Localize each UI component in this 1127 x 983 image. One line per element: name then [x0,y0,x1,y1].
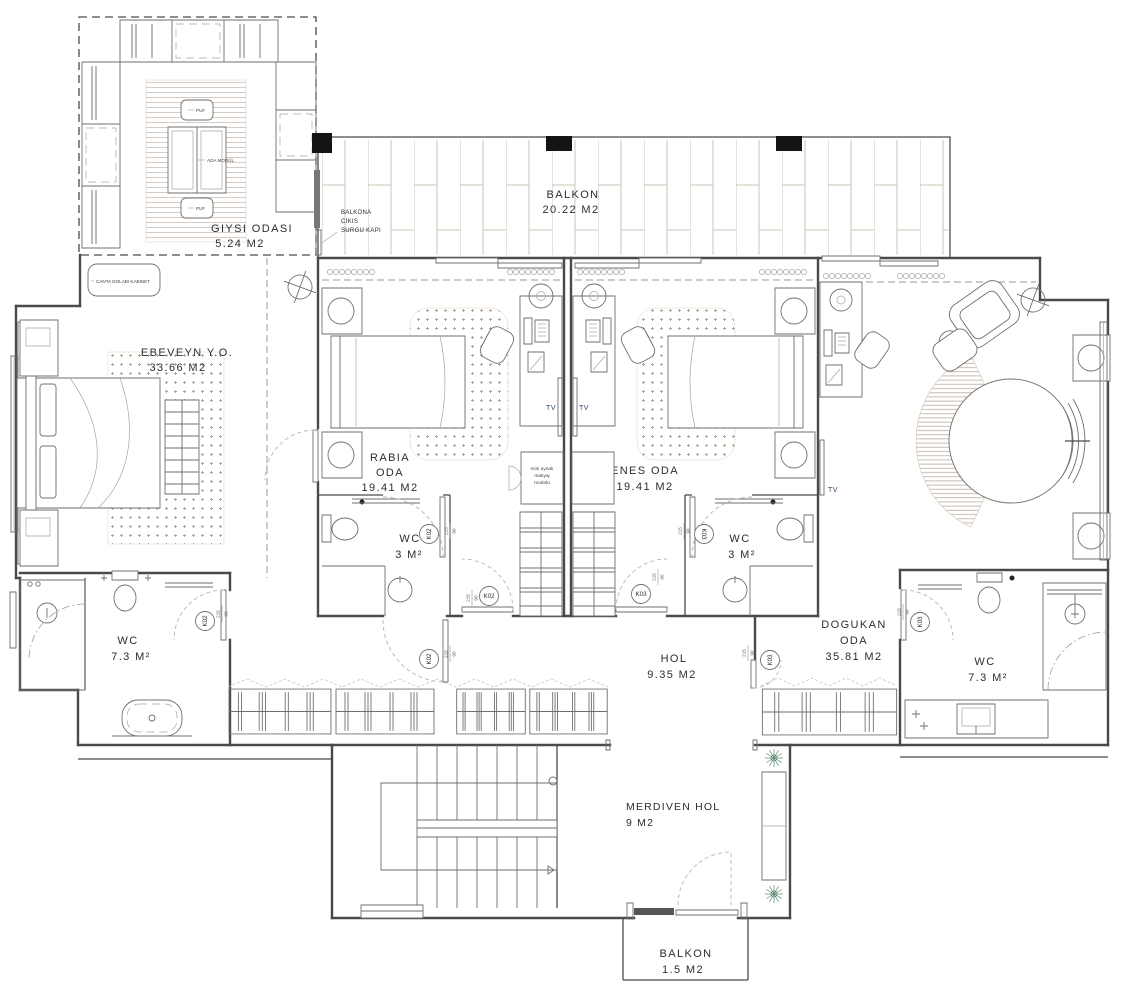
tv-label: TV [579,405,589,412]
giysi-room-name: GIYSI ODASI [211,223,293,235]
svg-text:90: 90 [452,651,457,657]
giysi-room-area: 5.24 M2 [215,238,265,250]
door-mark-k03: K03 [917,616,924,628]
svg-text:215: 215 [444,650,449,658]
bed-headboard [331,336,340,428]
door-leaf [616,607,667,612]
door-mark-k02: K02 [202,615,209,627]
rabia-name-1: RABIA [370,452,410,464]
balkon-top-name: BALKON [546,189,599,201]
sliding-door-panel [639,258,701,263]
balcony-tiles [320,140,948,255]
enes-name: ENES ODA [611,465,679,477]
svg-text:215: 215 [897,608,902,616]
balcony-door-note-2: CIKIS [341,219,358,225]
pouf-top-label: PUF [196,108,205,113]
door-leaf [751,660,756,688]
door-mark-k03: K03 [700,528,707,540]
dogukan-name-1: DOGUKAN [821,619,886,631]
door-leaf [313,430,318,482]
svg-text:90: 90 [474,595,479,601]
wc-left-name: WC [117,635,138,647]
wc-left-area: 7.3 M² [111,651,151,663]
module-mirror-side [572,452,614,504]
toilet-bowl [332,518,358,540]
svg-text:215: 215 [678,527,683,535]
wc-rabia-name: WC [399,533,420,545]
sliding-door-panel [498,263,562,268]
sliding-door-panel [436,258,498,263]
merdiven-area: 9 M2 [626,817,654,829]
door-mark-k02: K02 [483,593,495,600]
sliding-door-panel [880,261,938,266]
svg-text:90: 90 [905,609,910,615]
round-bed [949,379,1073,503]
master-bed [36,378,160,508]
toilet-tank [977,573,1002,582]
balkon-bottom-area: 1.5 M2 [662,964,704,976]
svg-text:90: 90 [686,528,691,534]
sliding-door-panel [314,170,320,228]
svg-text:215: 215 [466,594,471,602]
bathtub [122,700,182,736]
wc-enes-name: WC [729,533,750,545]
bed-headboard [26,376,36,510]
enes-bed [668,336,794,428]
rabia-name-2: ODA [376,467,404,479]
sliding-door-panel [822,256,880,261]
column [312,133,332,153]
balcony-door-note-1: BALKONA [341,210,371,216]
toilet-tank [112,571,138,580]
rabia-area: 19.41 M2 [361,482,418,494]
dogukan-name-2: ODA [840,635,868,647]
tv-label: TV [828,487,838,494]
toilet-tank [804,515,813,542]
toilet-bowl [114,585,136,611]
door-leaf [462,607,513,612]
wc-enes-area: 3 M² [728,549,756,561]
column [776,136,802,151]
dogukan-area: 35.81 M2 [825,651,882,663]
bag-cabinet-label: CANTA DOLABI KABINET [96,279,150,284]
tv-label: TV [546,405,556,412]
hol-name: HOL [661,653,688,665]
stair-rail [417,820,557,837]
svg-text:90: 90 [224,611,229,617]
island-module-label: ADA MODÜL [207,157,235,163]
makeup-line-1: mini aynalı [531,466,554,472]
makeup-line-3: modülü [534,480,550,486]
toilet-bowl [978,587,1000,613]
svg-text:215: 215 [652,573,657,581]
drain [1010,576,1015,581]
floorplan-svg: PUF PUF ADA MODÜL GIYSI ODASI 5.24 M2 BA… [0,0,1127,983]
svg-text:215: 215 [444,527,449,535]
sliding-door-panel [634,908,674,915]
svg-text:90: 90 [750,650,755,656]
enes-area: 19.41 M2 [616,481,673,493]
merdiven-name: MERDIVEN HOL [626,801,720,813]
sliding-door-panel [575,263,639,268]
bottom-step [361,905,423,918]
door-mark-k02: K02 [426,528,433,540]
central-shaft: mini aynalı makyaj modülü [509,452,615,616]
balkon-top-area: 20.22 M2 [542,204,599,216]
wc-rabia-area: 3 M² [395,549,423,561]
wc-right-area: 7.3 M² [968,672,1008,684]
hol-area: 9.35 M2 [647,669,697,681]
balkon-bottom-name: BALKON [659,948,712,960]
door-mark-k03: K03 [635,591,647,598]
door-mark-k03: K03 [767,654,774,666]
svg-text:215: 215 [742,649,747,657]
toilet-bowl [777,518,803,540]
makeup-line-2: makyaj [534,473,549,479]
toilet-tank [322,515,331,542]
door-mark-k02: K02 [426,653,433,665]
pouf-bottom-label: PUF [196,206,205,211]
column [546,136,572,151]
svg-text:215: 215 [216,610,221,618]
wc-right-name: WC [974,656,995,668]
drain [360,500,365,505]
ebeveyn-area: 33.66 M2 [149,362,206,374]
svg-text:90: 90 [660,574,665,580]
svg-text:90: 90 [452,528,457,534]
drain [771,500,776,505]
bed-headboard [794,336,803,428]
balcony-door-note-3: SURGU KAPI [341,228,381,234]
ebeveyn-name: EBEVEYN Y.O. [141,347,233,359]
rabia-bed [340,336,465,428]
